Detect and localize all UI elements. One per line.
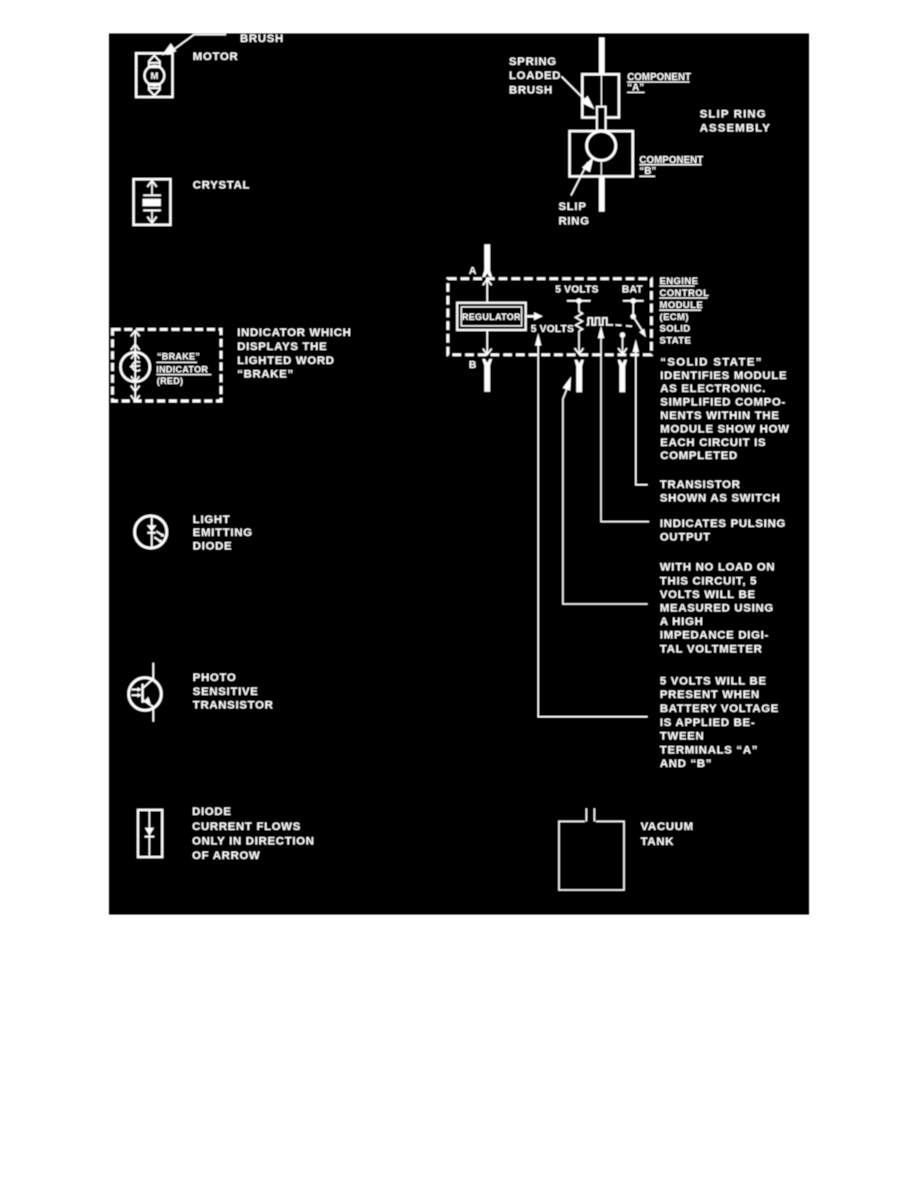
svg-text:LIGHT: LIGHT <box>193 514 231 526</box>
svg-text:OF ARROW: OF ARROW <box>192 850 260 862</box>
svg-text:TANK: TANK <box>641 836 675 848</box>
svg-text:INDICATOR WHICH: INDICATOR WHICH <box>237 327 351 339</box>
svg-text:INDICATOR: INDICATOR <box>156 364 208 374</box>
svg-text:TERMINALS “A”: TERMINALS “A” <box>660 744 758 756</box>
svg-text:IS APPLIED BE-: IS APPLIED BE- <box>660 717 755 729</box>
svg-text:“SOLID STATE”: “SOLID STATE” <box>660 356 763 368</box>
svg-text:SLIP RING: SLIP RING <box>700 108 767 120</box>
svg-text:TRANSISTOR: TRANSISTOR <box>193 700 274 712</box>
svg-text:ASSEMBLY: ASSEMBLY <box>700 123 771 135</box>
svg-text:TWEEN: TWEEN <box>660 731 705 743</box>
svg-text:CURRENT FLOWS: CURRENT FLOWS <box>192 821 301 833</box>
svg-text:“BRAKE”: “BRAKE” <box>157 352 200 362</box>
svg-text:EACH CIRCUIT IS: EACH CIRCUIT IS <box>660 437 766 449</box>
svg-text:IDENTIFIES MODULE: IDENTIFIES MODULE <box>660 370 787 382</box>
svg-text:PRESENT WHEN: PRESENT WHEN <box>660 689 760 701</box>
svg-text:BAT: BAT <box>622 284 643 295</box>
svg-text:WITH NO LOAD ON: WITH NO LOAD ON <box>660 562 775 574</box>
svg-text:5 VOLTS WILL BE: 5 VOLTS WILL BE <box>660 675 767 687</box>
svg-text:SIMPLIFIED COMPO-: SIMPLIFIED COMPO- <box>660 397 786 409</box>
svg-text:ONLY IN DIRECTION: ONLY IN DIRECTION <box>192 836 315 848</box>
svg-text:ENGINE: ENGINE <box>660 276 699 287</box>
svg-text:COMPLETED: COMPLETED <box>660 450 738 462</box>
svg-text:TAL VOLTMETER: TAL VOLTMETER <box>660 643 763 655</box>
svg-text:MOTOR: MOTOR <box>193 51 239 63</box>
svg-text:BRUSH: BRUSH <box>509 85 553 97</box>
svg-text:CRYSTAL: CRYSTAL <box>193 179 250 191</box>
svg-text:SHOWN AS SWITCH: SHOWN AS SWITCH <box>660 492 781 504</box>
svg-text:MODULE: MODULE <box>660 300 704 311</box>
svg-text:DIODE: DIODE <box>192 806 232 818</box>
svg-text:MODULE SHOW HOW: MODULE SHOW HOW <box>660 423 789 435</box>
svg-text:BATTERY VOLTAGE: BATTERY VOLTAGE <box>660 703 779 715</box>
svg-text:A HIGH: A HIGH <box>660 616 704 628</box>
svg-text:A: A <box>469 266 477 277</box>
svg-text:OUTPUT: OUTPUT <box>660 531 711 543</box>
svg-text:INDICATES PULSING: INDICATES PULSING <box>660 518 786 530</box>
svg-text:BRUSH: BRUSH <box>240 33 284 45</box>
svg-text:(ECM): (ECM) <box>660 312 689 323</box>
svg-text:THIS CIRCUIT, 5: THIS CIRCUIT, 5 <box>660 575 757 587</box>
svg-text:M: M <box>150 71 158 82</box>
svg-text:STATE: STATE <box>660 335 692 346</box>
svg-text:TRANSISTOR: TRANSISTOR <box>660 479 741 491</box>
svg-text:DIODE: DIODE <box>193 541 233 553</box>
svg-text:AS ELECTRONIC.: AS ELECTRONIC. <box>660 383 766 395</box>
svg-text:“B”: “B” <box>639 166 656 177</box>
svg-text:EMITTING: EMITTING <box>193 527 253 539</box>
svg-text:SOLID: SOLID <box>660 324 691 335</box>
svg-text:VOLTS WILL BE: VOLTS WILL BE <box>660 589 756 601</box>
svg-text:RING: RING <box>559 215 590 227</box>
svg-text:SLIP: SLIP <box>559 201 587 213</box>
svg-text:VACUUM: VACUUM <box>641 821 694 833</box>
svg-text:REGULATOR: REGULATOR <box>462 312 521 322</box>
svg-text:“BRAKE”: “BRAKE” <box>237 369 294 381</box>
svg-text:AND “B”: AND “B” <box>660 758 712 770</box>
svg-text:B: B <box>469 360 476 371</box>
svg-text:NENTS WITHIN THE: NENTS WITHIN THE <box>660 410 779 422</box>
svg-text:PHOTO: PHOTO <box>193 672 237 684</box>
svg-text:5 VOLTS: 5 VOLTS <box>531 324 574 335</box>
svg-text:SPRING: SPRING <box>509 56 557 68</box>
svg-text:CONTROL: CONTROL <box>660 288 710 299</box>
svg-text:SENSITIVE: SENSITIVE <box>193 686 259 698</box>
svg-text:LOADED: LOADED <box>509 70 561 82</box>
svg-text:DISPLAYS THE: DISPLAYS THE <box>237 341 327 353</box>
svg-text:MEASURED USING: MEASURED USING <box>660 603 774 615</box>
svg-text:IMPEDANCE DIGI-: IMPEDANCE DIGI- <box>660 630 769 642</box>
svg-text:(RED): (RED) <box>157 376 184 386</box>
svg-text:LIGHTED WORD: LIGHTED WORD <box>237 355 334 367</box>
svg-text:5 VOLTS: 5 VOLTS <box>555 284 598 295</box>
